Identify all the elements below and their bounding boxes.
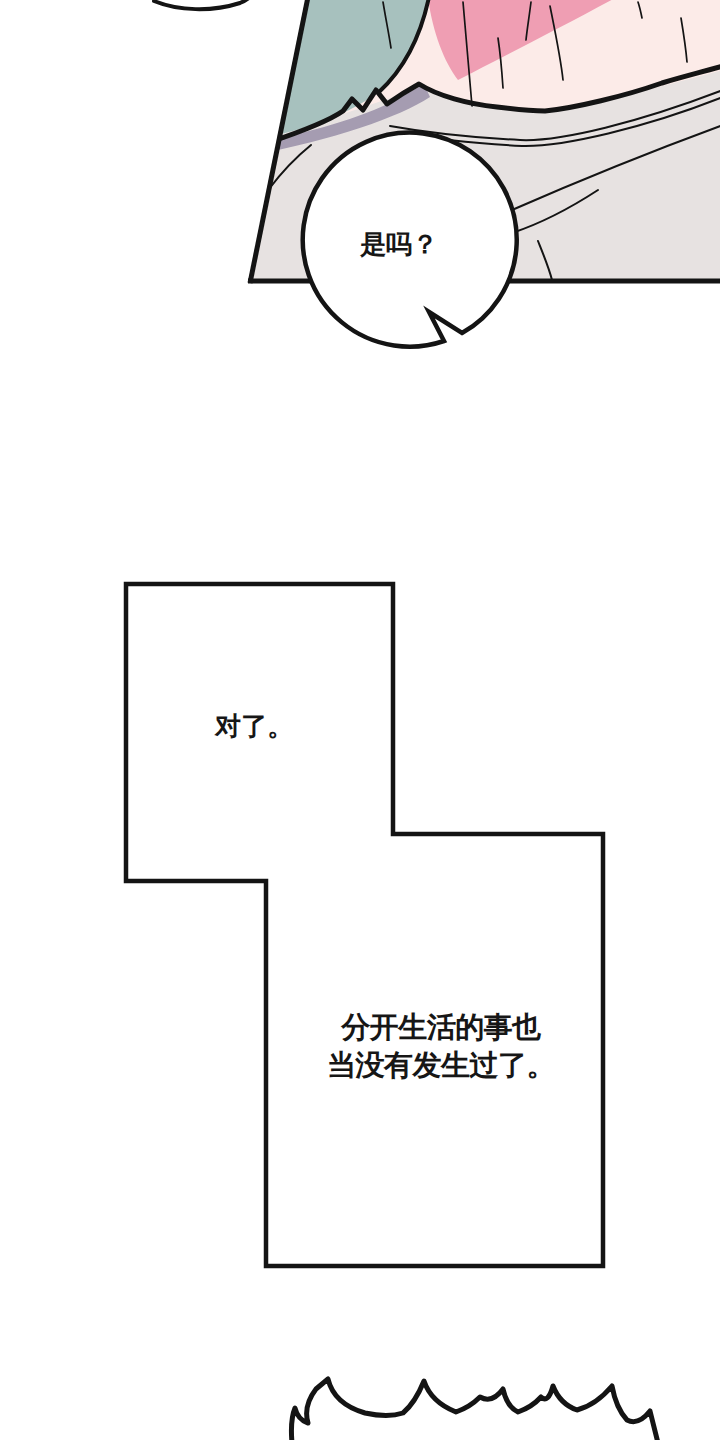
speech-bubble-text: 是吗？ [329, 229, 469, 260]
panel2-caption: 对了。 [154, 711, 354, 741]
comic-page: 是吗？ 对了。 分开生活的事也 当没有发生过了。 [0, 0, 720, 1440]
panel3-caption: 分开生活的事也 当没有发生过了。 [281, 1008, 601, 1084]
panel3-caption-line1: 分开生活的事也 [281, 1008, 601, 1046]
top-arc-stroke [154, 0, 251, 9]
stepped-panel-outline [126, 584, 603, 1266]
burst-bubble-outline [291, 1379, 658, 1440]
panel3-caption-line2: 当没有发生过了。 [281, 1046, 601, 1084]
comic-line-art [0, 0, 720, 1440]
